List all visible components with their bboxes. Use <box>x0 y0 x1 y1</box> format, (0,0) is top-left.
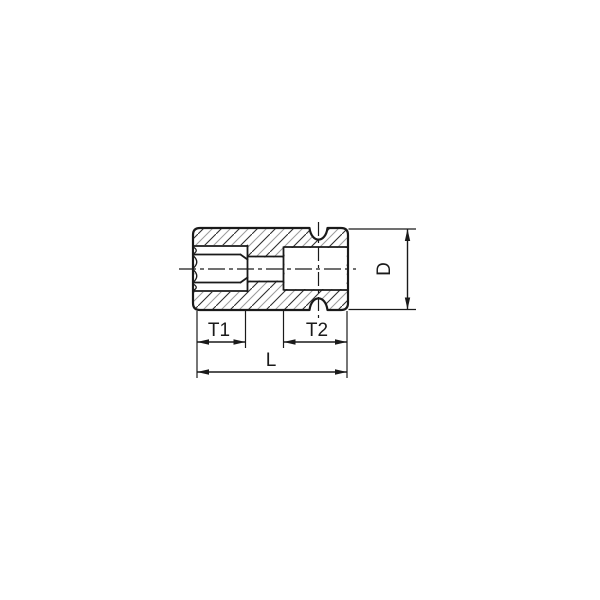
dimension-length: L <box>197 350 347 375</box>
socket-section-drawing: T1 T2 L D <box>0 0 600 600</box>
arrowhead <box>234 339 246 344</box>
diameter-label: D <box>374 262 395 276</box>
t1-label: T1 <box>208 320 230 341</box>
arrowhead <box>197 369 209 374</box>
dimension-t2: T2 <box>284 320 348 345</box>
arrowhead <box>284 339 296 344</box>
dimension-t1: T1 <box>197 320 246 345</box>
t2-label: T2 <box>306 320 328 341</box>
dimension-diameter: D <box>374 229 410 310</box>
drawing-canvas: T1 T2 L D <box>0 0 600 600</box>
arrowhead <box>335 369 347 374</box>
length-label: L <box>266 350 277 371</box>
arrowhead <box>405 229 410 241</box>
arrowhead <box>335 339 347 344</box>
arrowhead <box>405 298 410 310</box>
